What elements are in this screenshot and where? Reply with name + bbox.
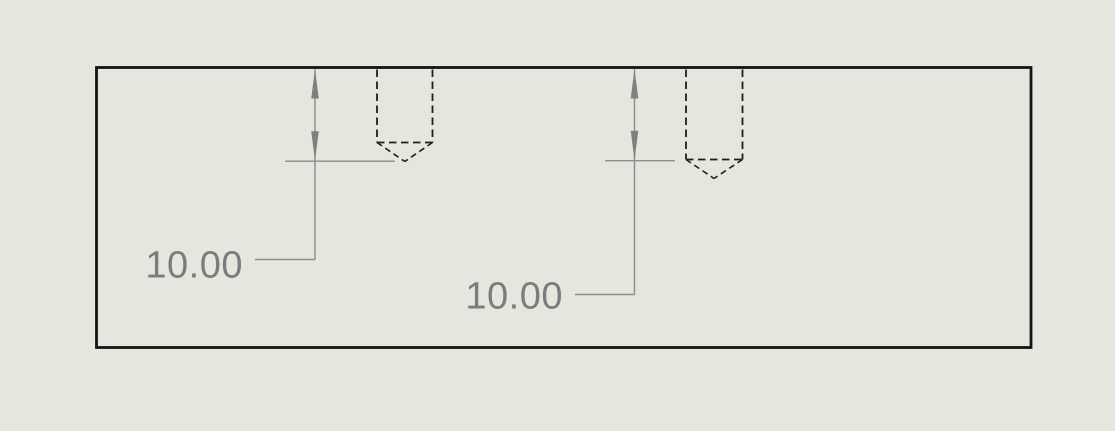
hole-2-drill-point-left-edge[interactable] <box>686 160 714 179</box>
dimension-2-arrow-up-icon[interactable] <box>631 69 639 99</box>
dimension-2-arrow-down-icon[interactable] <box>631 131 639 161</box>
dimension-1-value[interactable]: 10.00 <box>145 245 243 287</box>
hole-1-hidden-profile[interactable] <box>377 70 433 162</box>
hole-2-hidden-profile[interactable] <box>686 70 743 179</box>
dimension-2-value[interactable]: 10.00 <box>465 276 563 318</box>
dimension-1-arrow-up-icon[interactable] <box>311 69 319 99</box>
drawing-canvas: 10.00 10.00 <box>0 0 1115 431</box>
dimension-1-arrow-down-icon[interactable] <box>311 131 319 161</box>
dimension-2[interactable]: 10.00 <box>465 69 675 318</box>
hole-2-drill-point-right-edge[interactable] <box>714 160 743 179</box>
dimension-1[interactable]: 10.00 <box>145 69 395 287</box>
part-outline-edge[interactable] <box>97 68 1032 348</box>
hole-1-drill-point-right-edge[interactable] <box>405 143 433 162</box>
cad-drawing-viewport[interactable]: 10.00 10.00 <box>0 0 1115 431</box>
hole-1-drill-point-left-edge[interactable] <box>377 143 405 162</box>
